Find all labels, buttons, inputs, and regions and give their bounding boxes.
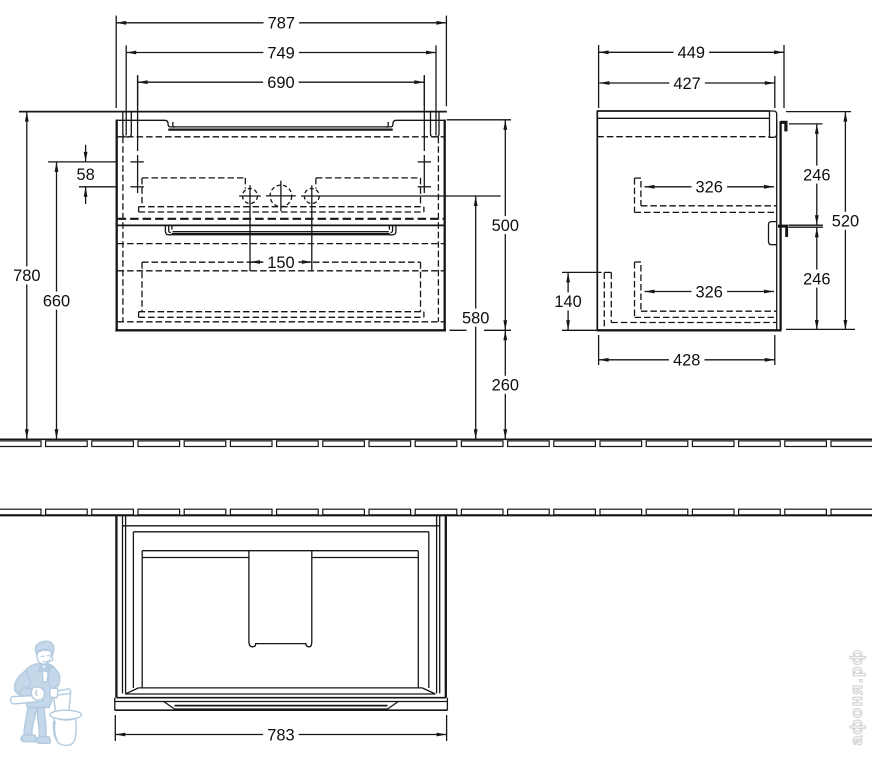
svg-text:326: 326 bbox=[696, 283, 723, 301]
svg-text:449: 449 bbox=[678, 44, 705, 62]
svg-text:246: 246 bbox=[803, 270, 830, 288]
svg-text:428: 428 bbox=[673, 352, 700, 370]
svg-text:783: 783 bbox=[267, 726, 294, 744]
svg-text:580: 580 bbox=[462, 309, 489, 327]
svg-text:780: 780 bbox=[13, 267, 40, 285]
svg-text:427: 427 bbox=[673, 75, 700, 93]
svg-text:660: 660 bbox=[43, 292, 70, 310]
svg-text:246: 246 bbox=[803, 166, 830, 184]
svg-text:690: 690 bbox=[267, 74, 294, 92]
svg-text:260: 260 bbox=[492, 377, 519, 395]
svg-text:520: 520 bbox=[832, 213, 859, 231]
svg-text:150: 150 bbox=[267, 254, 294, 272]
svg-text:афоня.рф: афоня.рф bbox=[847, 649, 866, 746]
svg-text:326: 326 bbox=[696, 179, 723, 197]
svg-text:58: 58 bbox=[76, 166, 94, 184]
svg-text:140: 140 bbox=[554, 293, 581, 311]
svg-text:787: 787 bbox=[268, 15, 295, 33]
svg-text:749: 749 bbox=[267, 44, 294, 62]
svg-text:500: 500 bbox=[492, 217, 519, 235]
